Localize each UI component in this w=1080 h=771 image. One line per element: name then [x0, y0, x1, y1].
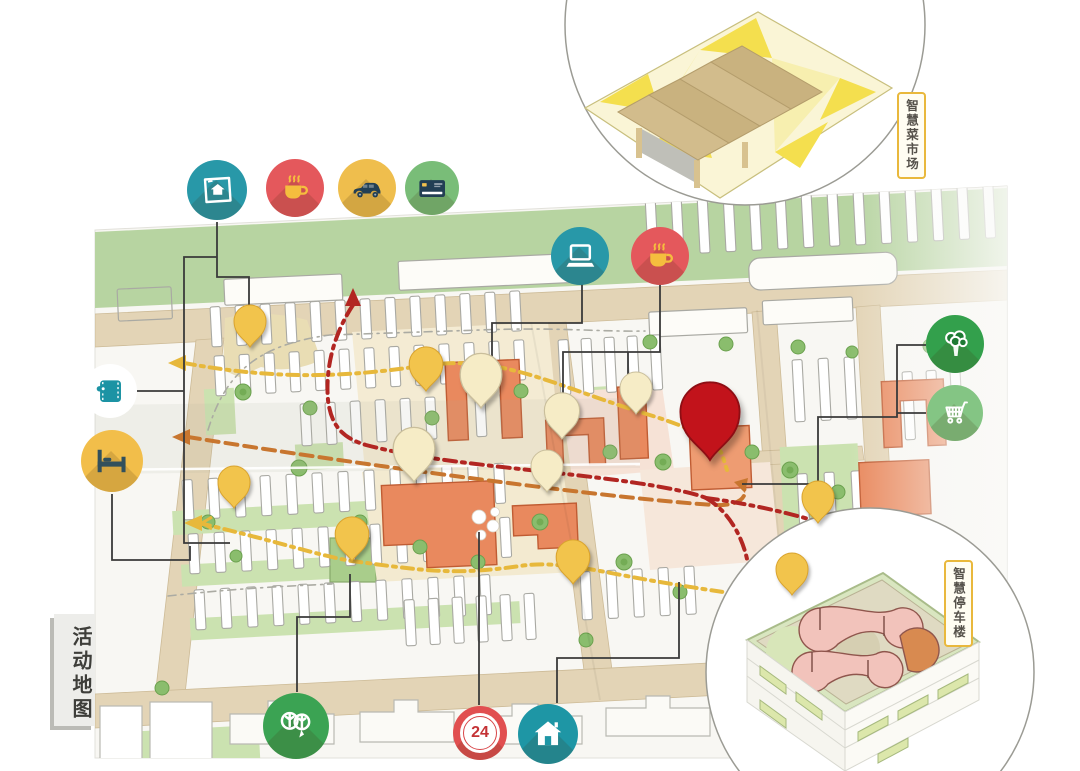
shopping-cart-icon-glyph [938, 396, 972, 430]
shopping-cart-icon[interactable] [927, 385, 983, 441]
laptop-icon[interactable] [551, 227, 609, 285]
broccoli-icon-glyph [938, 327, 973, 362]
market-callout [565, 0, 925, 205]
wallet-icon-glyph [94, 375, 126, 407]
coffee-icon-glyph [278, 171, 313, 206]
map-house-icon[interactable] [187, 160, 247, 220]
coffee-icon[interactable] [266, 159, 324, 217]
car-icon[interactable] [338, 159, 396, 217]
vegetables-icon-glyph [276, 706, 316, 746]
wallet-icon[interactable] [83, 364, 137, 418]
bed-icon[interactable] [81, 430, 143, 492]
car-icon-glyph [350, 171, 385, 206]
bed-icon-glyph [93, 442, 130, 479]
24-hours-icon[interactable]: 24 [453, 706, 507, 760]
parking-callout-label: 智慧停车楼 [944, 560, 973, 647]
market-callout-label: 智慧菜市场 [897, 92, 926, 179]
home-icon-glyph [530, 716, 566, 752]
home-icon[interactable] [518, 704, 578, 764]
page-title: 活动地图 [54, 614, 95, 726]
credit-card-icon[interactable] [405, 161, 459, 215]
credit-card-icon-glyph [416, 172, 448, 204]
24-badge-disc: 24 [460, 713, 500, 753]
24-badge-text: 24 [471, 724, 489, 742]
broccoli-icon[interactable] [926, 315, 984, 373]
laptop-icon-glyph [563, 239, 598, 274]
activity-map-infographic: 24 活动地图 智慧菜市场 智慧停车楼 [0, 0, 1080, 771]
coffee-icon-2-glyph [643, 239, 678, 274]
coffee-icon-2[interactable] [631, 227, 689, 285]
vegetables-icon[interactable] [263, 693, 329, 759]
map-house-icon-glyph [199, 172, 235, 208]
